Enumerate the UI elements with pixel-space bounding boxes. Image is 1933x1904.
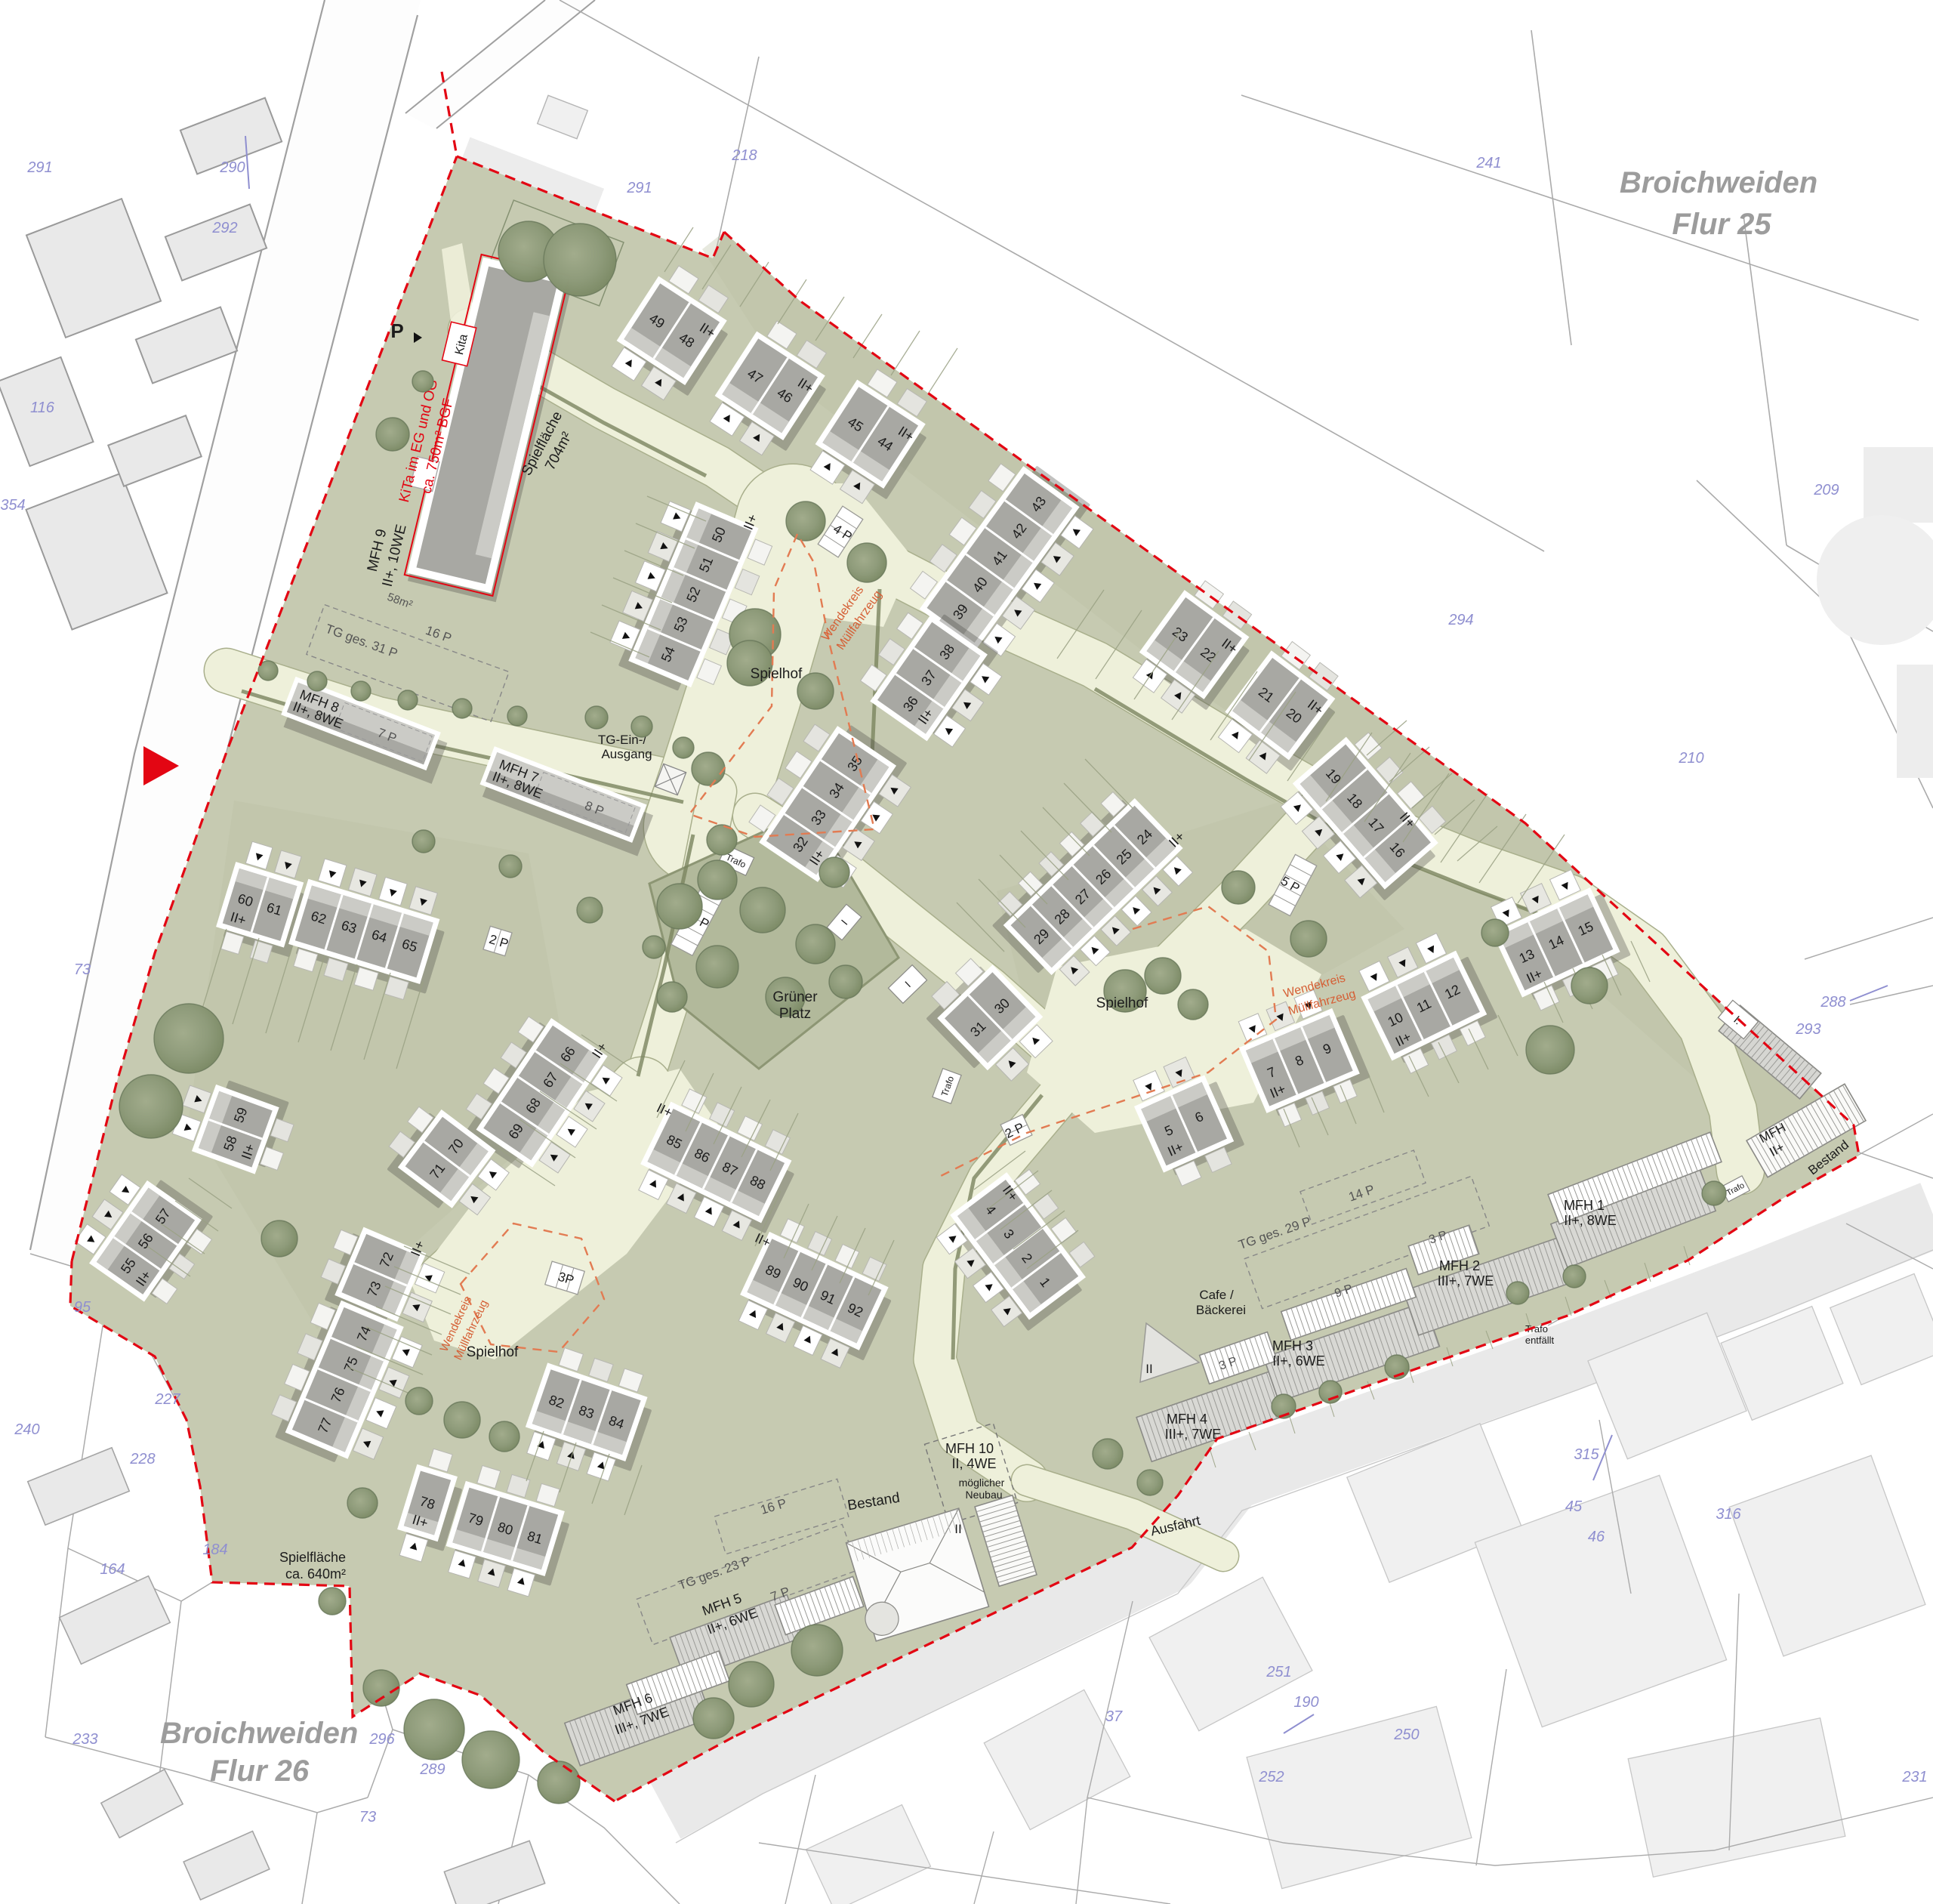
svg-text:251: 251 (1266, 1664, 1291, 1680)
svg-text:210: 210 (1678, 750, 1703, 767)
svg-text:II: II (1145, 1362, 1152, 1376)
svg-text:293: 293 (1795, 1021, 1820, 1038)
svg-text:73: 73 (359, 1809, 376, 1825)
svg-text:227: 227 (154, 1391, 180, 1408)
svg-text:240: 240 (14, 1421, 39, 1438)
svg-text:Spielhof: Spielhof (1096, 995, 1148, 1011)
svg-text:Platz: Platz (779, 1006, 811, 1022)
svg-text:315: 315 (1574, 1446, 1599, 1463)
svg-text:46: 46 (1588, 1529, 1605, 1545)
svg-text:250: 250 (1393, 1727, 1419, 1743)
svg-text:Broichweiden: Broichweiden (160, 1717, 358, 1750)
svg-text:MFH 3: MFH 3 (1272, 1338, 1313, 1353)
svg-text:116: 116 (30, 400, 55, 416)
svg-text:möglicher: möglicher (959, 1477, 1005, 1489)
svg-text:Ausgang: Ausgang (601, 747, 652, 761)
svg-text:164: 164 (100, 1561, 125, 1578)
svg-text:MFH 10: MFH 10 (945, 1441, 994, 1456)
svg-text:II, 4WE: II, 4WE (951, 1456, 996, 1471)
svg-text:Bäckerei: Bäckerei (1196, 1303, 1246, 1317)
svg-text:289: 289 (419, 1761, 445, 1778)
svg-text:III+, 7WE: III+, 7WE (1438, 1273, 1494, 1288)
svg-text:Spielhof: Spielhof (751, 666, 803, 682)
svg-text:252: 252 (1258, 1769, 1284, 1785)
svg-text:316: 316 (1716, 1506, 1741, 1523)
svg-text:MFH 4: MFH 4 (1167, 1412, 1207, 1427)
svg-text:Neubau: Neubau (965, 1489, 1002, 1501)
svg-text:233: 233 (72, 1731, 97, 1748)
svg-text:II: II (954, 1522, 961, 1536)
svg-text:45: 45 (1565, 1498, 1583, 1515)
svg-text:241: 241 (1475, 155, 1501, 171)
svg-text:Flur 25: Flur 25 (1672, 208, 1771, 241)
svg-text:231: 231 (1901, 1769, 1927, 1785)
svg-text:73: 73 (74, 961, 91, 978)
svg-text:288: 288 (1820, 994, 1845, 1011)
svg-text:II+, 8WE: II+, 8WE (1564, 1213, 1617, 1228)
svg-text:MFH 1: MFH 1 (1564, 1198, 1605, 1213)
svg-text:Spielfläche: Spielfläche (279, 1550, 346, 1565)
svg-text:95: 95 (74, 1299, 91, 1316)
svg-text:296: 296 (368, 1731, 395, 1748)
svg-text:entfällt: entfällt (1525, 1335, 1555, 1346)
svg-text:218: 218 (731, 147, 757, 164)
svg-text:190: 190 (1293, 1694, 1318, 1711)
svg-text:37: 37 (1105, 1708, 1123, 1725)
svg-text:Flur 26: Flur 26 (210, 1754, 310, 1788)
svg-text:Broichweiden: Broichweiden (1620, 166, 1817, 199)
svg-text:Spielhof: Spielhof (467, 1344, 519, 1360)
svg-text:184: 184 (202, 1541, 227, 1558)
svg-text:Grüner: Grüner (772, 989, 818, 1005)
svg-text:III+, 7WE: III+, 7WE (1165, 1427, 1222, 1442)
svg-text:ca. 640m²: ca. 640m² (285, 1566, 346, 1582)
svg-text:291: 291 (26, 159, 52, 176)
svg-text:II+, 6WE: II+, 6WE (1272, 1353, 1325, 1369)
svg-text:294: 294 (1447, 612, 1473, 628)
svg-text:MFH 2: MFH 2 (1439, 1258, 1480, 1273)
svg-text:209: 209 (1813, 482, 1839, 498)
svg-text:228: 228 (129, 1451, 155, 1467)
svg-text:290: 290 (219, 159, 245, 176)
svg-text:Cafe /: Cafe / (1199, 1288, 1234, 1302)
svg-text:291: 291 (626, 180, 652, 196)
svg-text:292: 292 (211, 220, 237, 236)
svg-text:354: 354 (0, 497, 25, 514)
